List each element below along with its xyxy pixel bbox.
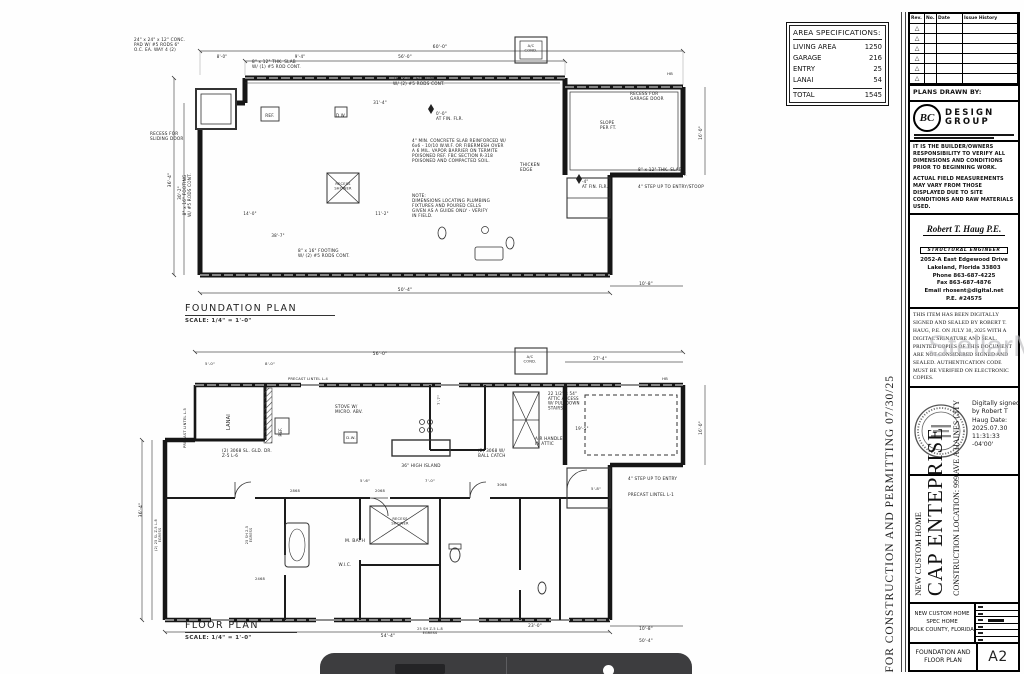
plan-annotation: PRECAST LINTEL L-4 — [288, 377, 329, 381]
area-label: LIVING AREA — [793, 42, 836, 53]
revision-table: Rev. No. Date Issue History △ △ △ △ △ △ — [910, 14, 1018, 86]
revision-row: △ — [910, 44, 1018, 54]
plan-annotation: 31'-4" — [373, 100, 387, 105]
plan-annotation: HB — [662, 376, 668, 381]
project-client-name: CAP ENTEPRISE — [923, 427, 948, 596]
plan-annotation: 9'-4" — [295, 54, 305, 59]
revision-row: △ — [910, 34, 1018, 44]
area-spec-row: LIVING AREA 1250 — [793, 42, 882, 53]
plan-annotation: 8'-0" — [217, 54, 227, 59]
foundation-walls — [200, 78, 683, 275]
viewer-toolbar-left-button[interactable] — [320, 653, 506, 674]
plan-annotation: 36'-4" — [138, 503, 144, 518]
plan-annotation: 3068 — [497, 483, 507, 487]
titleblock-border-line — [905, 12, 906, 672]
plan-annotation: D.W. — [336, 113, 346, 118]
issue-history-col-header: Issue History — [963, 14, 1018, 23]
toilet-symbol — [506, 237, 514, 249]
project-id-block: NEW CUSTOM HOME SPEC HOME POLK COUNTY, F… — [910, 604, 976, 642]
revision-triangle-icon: △ — [915, 76, 920, 82]
plan-annotation: PRECAST LINTEL L-5 — [183, 408, 187, 448]
foundation-plan-drawing: 24" x 24" x 12" CONC.PAD W/ #5 RODS 6"O.… — [130, 25, 730, 330]
disclaimer-1: IT IS THE BUILDER/OWNERS RESPONSIBILITY … — [913, 144, 1015, 172]
photo-viewer-toolbar[interactable] — [320, 653, 692, 674]
plan-annotation: -4"AT FIN. FLR. — [582, 179, 608, 189]
plan-annotation: 16'-0" — [698, 421, 703, 435]
plan-annotation: PRECAST LINTEL L-1 — [628, 492, 674, 497]
plan-annotation: 7'-0" — [425, 478, 435, 483]
footer-line-3: POLK COUNTY, FLORIDA — [910, 627, 974, 635]
plan-annotation: (2) 3068 SL. GLD. DR.Z-5 L-6 — [222, 448, 272, 458]
plan-annotation: 5'-6" — [360, 478, 370, 483]
plan-annotation: AIR HANDLERIN ATTIC — [535, 436, 566, 446]
plan-annotation: 25 SH Z-5 L-8EGRESS — [417, 627, 443, 635]
plan-annotation: STOVE W/MICRO. ABV. — [335, 404, 363, 414]
plan-annotation: 2468 — [255, 577, 265, 581]
toilet — [538, 582, 546, 594]
area-label: ENTRY — [793, 64, 815, 75]
plan-annotation: 54'-4" — [381, 633, 396, 639]
logo-microtext-line — [914, 137, 994, 139]
project-type: NEW CUSTOM HOME — [913, 512, 923, 596]
plan-annotation: 4" STEP UP TO ENTRY — [628, 476, 677, 481]
plan-annotation: THICKENEDGE — [519, 162, 540, 172]
area-label: LANAI — [793, 75, 813, 86]
footer-line-2: SPEC HOME — [910, 619, 974, 627]
plan-annotation: 2068 — [375, 489, 385, 493]
rev-col-header: Rev. — [910, 14, 925, 23]
area-specifications-table: AREA SPECIFICATIONS: LIVING AREA 1250 GA… — [786, 22, 889, 106]
foundation-plan-title: FOUNDATION PLAN SCALE: 1/4" = 1'-0" — [185, 303, 335, 324]
plan-annotation: RECESSSHOWER — [391, 517, 409, 525]
plan-annotation: 5'-0" — [205, 361, 215, 366]
plan-annotation: 19'-5" — [575, 426, 588, 431]
floor-plan-drawing: LANAIPRECAST LINTEL L-5PRECAST LINTEL L-… — [130, 340, 730, 650]
revision-table-header: Rev. No. Date Issue History — [910, 14, 1018, 24]
concrete-pad — [196, 89, 236, 129]
plan-annotation: 27'-4" — [593, 356, 607, 361]
mini-table-row — [976, 637, 1018, 643]
area-value: 1250 — [865, 42, 882, 53]
plan-annotation: 8" x 12" THK. SLABW/ (1) #5 ROD CONT. — [638, 167, 687, 177]
plan-annotation: 8" x 16" FOOTINGW/ #5 RODS CONT. — [182, 173, 192, 217]
engineer-title: STRUCTURAL ENGINEER — [920, 247, 1007, 254]
engineer-block: Robert T. Haug P.E. STRUCTURAL ENGINEER … — [910, 215, 1018, 309]
plan-annotation: REF. — [278, 427, 283, 436]
kitchen-island — [392, 440, 450, 456]
titleblock-footer: NEW CUSTOM HOME SPEC HOME POLK COUNTY, F… — [910, 604, 1018, 670]
plan-annotation: 56'-0" — [373, 351, 388, 357]
digital-signature-text: Digitally signed by Robert T Haug Date: … — [972, 400, 1021, 448]
plan-annotation: (2) 25 SL Z-5 L-8EGRESS — [154, 519, 162, 551]
blueprint-sheet: 24" x 24" x 12" CONC.PAD W/ #5 RODS 6"O.… — [0, 0, 1024, 674]
plan-annotation: 36'-4" — [167, 173, 173, 188]
entry-stoop — [567, 468, 610, 508]
revision-row: △ — [910, 74, 1018, 84]
plan-annotation: RECESSSHOWER — [334, 182, 352, 190]
plan-annotation: 25 SH 2-5EGRESS — [245, 526, 253, 545]
plan-annotation: 0'-0"AT FIN. FLR. — [436, 111, 463, 121]
sheet-title: FOUNDATION AND FLOOR PLAN — [910, 644, 978, 670]
revision-triangle-icon: △ — [915, 26, 920, 32]
plan-annotation: REF. — [265, 113, 274, 118]
plans-drawn-by-label: PLANS DRAWN BY: — [910, 86, 1018, 102]
area-value: 216 — [869, 53, 882, 64]
revision-triangle-icon: △ — [915, 46, 920, 52]
area-value: 25 — [873, 64, 882, 75]
tub-recess — [475, 247, 503, 260]
engineer-license: P.E. #24575 — [912, 296, 1016, 304]
engineer-address-2: Lakeland, Florida 33803 — [912, 265, 1016, 273]
plan-annotation: 4" MIN. CONCRETE SLAB REINFORCED W/6x6 -… — [412, 138, 506, 163]
disclaimer-block: IT IS THE BUILDER/OWNERS RESPONSIBILITY … — [910, 142, 1018, 215]
bc-logo-icon: BC — [913, 104, 941, 132]
plan-annotation: 50'-4" — [398, 287, 413, 293]
logo-name: DESIGN GROUP — [945, 109, 994, 128]
plan-annotation: 60'-0" — [433, 44, 448, 50]
titleblock-border-line — [901, 12, 902, 672]
area-total-label: TOTAL — [793, 91, 815, 99]
project-location: CONSTRUCTION LOCATION: 999 AVE A HAINES … — [952, 400, 961, 596]
bathtub — [285, 523, 309, 567]
plan-annotation: 10'-8" — [639, 626, 653, 631]
plan-annotation: 30'-2" — [177, 186, 182, 200]
toilet-symbol — [438, 227, 446, 239]
area-spec-title: AREA SPECIFICATIONS: — [793, 28, 882, 40]
area-spec-row: ENTRY 25 — [793, 64, 882, 75]
plan-annotation: M. BATH — [345, 538, 365, 544]
logo-microtext-line — [914, 134, 1014, 136]
plan-annotation: 8'-0" — [265, 361, 275, 366]
area-spec-total-row: TOTAL 1545 — [793, 88, 882, 99]
engineer-phone: Phone 863-687-4225 — [912, 273, 1016, 281]
plan-annotation: 2868 — [290, 489, 300, 493]
area-total-value: 1545 — [865, 91, 882, 99]
viewer-toolbar-right-button[interactable] — [507, 653, 693, 674]
pantry-wall — [264, 388, 272, 443]
revision-row: △ — [910, 64, 1018, 74]
engineer-fax: Fax 863-687-4876 — [912, 280, 1016, 288]
foundation-annotations: 24" x 24" x 12" CONC.PAD W/ #5 RODS 6"O.… — [134, 37, 704, 293]
floor-dimension-lines — [140, 350, 705, 634]
plan-annotation: 5'-8" — [591, 486, 601, 491]
plan-annotation: A/CCOND. — [524, 355, 537, 363]
plan-annotation: W.I.C. — [338, 562, 351, 567]
revision-triangle-icon: △ — [915, 66, 920, 72]
plan-annotation: 36" HIGH ISLAND — [401, 463, 440, 468]
area-spec-row: GARAGE 216 — [793, 53, 882, 64]
plan-annotation: NOTE:DIMENSIONS LOCATING PLUMBINGFIXTURE… — [412, 193, 490, 218]
disclaimer-2: ACTUAL FIELD MEASUREMENTS MAY VARY FROM … — [913, 176, 1015, 211]
floor-plan-scale: SCALE: 1/4" = 1'-0" — [185, 635, 297, 641]
garage-bay-outline — [585, 395, 677, 455]
logo-name-line2: GROUP — [945, 118, 994, 127]
plan-annotation: D.W. — [346, 435, 355, 440]
plan-annotation: 50'-4" — [639, 638, 653, 643]
revision-row: △ — [910, 24, 1018, 34]
area-spec-row: LANAI 54 — [793, 75, 882, 86]
plan-annotation: 10'-8" — [639, 281, 653, 286]
plan-annotation: 14'-0" — [243, 211, 256, 216]
title-block: Rev. No. Date Issue History △ △ △ △ △ △ … — [908, 12, 1020, 672]
sink-symbol — [482, 227, 489, 234]
floor-plan-title-text: FLOOR PLAN — [185, 620, 297, 633]
plan-annotation: RECESS FORSLIDING DOOR — [150, 131, 184, 141]
plan-annotation: 11'-2" — [375, 211, 388, 216]
footer-mini-table — [976, 604, 1018, 642]
area-label: GARAGE — [793, 53, 821, 64]
plan-annotation: 8" x 12" THK. SLABW/ (1) #5 ROD CONT. — [252, 59, 301, 69]
design-group-logo-block: BC DESIGN GROUP — [910, 102, 1018, 142]
plan-annotation: RECESS FORGARAGE DOOR — [630, 91, 664, 101]
viewer-toolbar-thumbnail[interactable] — [395, 664, 445, 674]
project-block: NEW CUSTOM HOME CAP ENTEPRISE CONSTRUCTI… — [910, 476, 1018, 604]
plan-annotation: 8" x 16" FOOTINGW/ (2) #5 RODS CONT. — [298, 248, 350, 258]
floor-plan-title: FLOOR PLAN SCALE: 1/4" = 1'-0" — [185, 620, 297, 641]
revision-triangle-icon: △ — [915, 56, 920, 62]
plan-annotation: HB — [667, 71, 673, 76]
plan-annotation: SLOPEPER FT. — [600, 120, 617, 130]
digital-signing-statement: THIS ITEM HAS BEEN DIGITALLY SIGNED AND … — [910, 309, 1018, 388]
viewer-toolbar-dot-icon[interactable] — [603, 665, 614, 676]
plan-annotation: 38'-7" — [271, 233, 284, 238]
foundation-plan-title-text: FOUNDATION PLAN — [185, 303, 335, 316]
no-col-header: No. — [925, 14, 937, 23]
toilet — [450, 548, 460, 562]
plan-annotation: 16'-0" — [698, 126, 703, 140]
area-value: 54 — [873, 75, 882, 86]
plan-annotation: LANAI — [226, 414, 232, 430]
construction-permit-note: FOR CONSTRUCTION AND PERMITTING 07/30/25 — [884, 375, 896, 673]
plan-annotation: 4" STEP UP TO ENTRY/STOOP — [638, 184, 704, 189]
engineer-name: Robert T. Haug P.E. — [923, 224, 1006, 236]
revision-row: △ — [910, 54, 1018, 64]
engineer-email: Email rhosent@digital.net — [912, 288, 1016, 296]
plan-annotation: 23'-0" — [528, 623, 542, 628]
sheet-number: A2 — [978, 644, 1018, 670]
plan-annotation: 56'-0" — [398, 54, 412, 59]
plan-annotation: 24" x 24" x 12" CONC.PAD W/ #5 RODS 6"O.… — [134, 37, 185, 52]
date-col-header: Date — [937, 14, 963, 23]
plan-annotation: (2) 3068 W/BALL CATCH — [478, 448, 506, 458]
footer-line-1: NEW CUSTOM HOME — [910, 611, 974, 619]
door-swings — [235, 470, 587, 516]
plan-annotation: A/CCOND. — [525, 44, 538, 52]
engineer-address-1: 2052-A East Edgewood Drive — [912, 257, 1016, 265]
plan-annotation: 7'-7" — [436, 395, 441, 405]
revision-triangle-icon: △ — [915, 36, 920, 42]
foundation-plan-scale: SCALE: 1/4" = 1'-0" — [185, 318, 335, 324]
